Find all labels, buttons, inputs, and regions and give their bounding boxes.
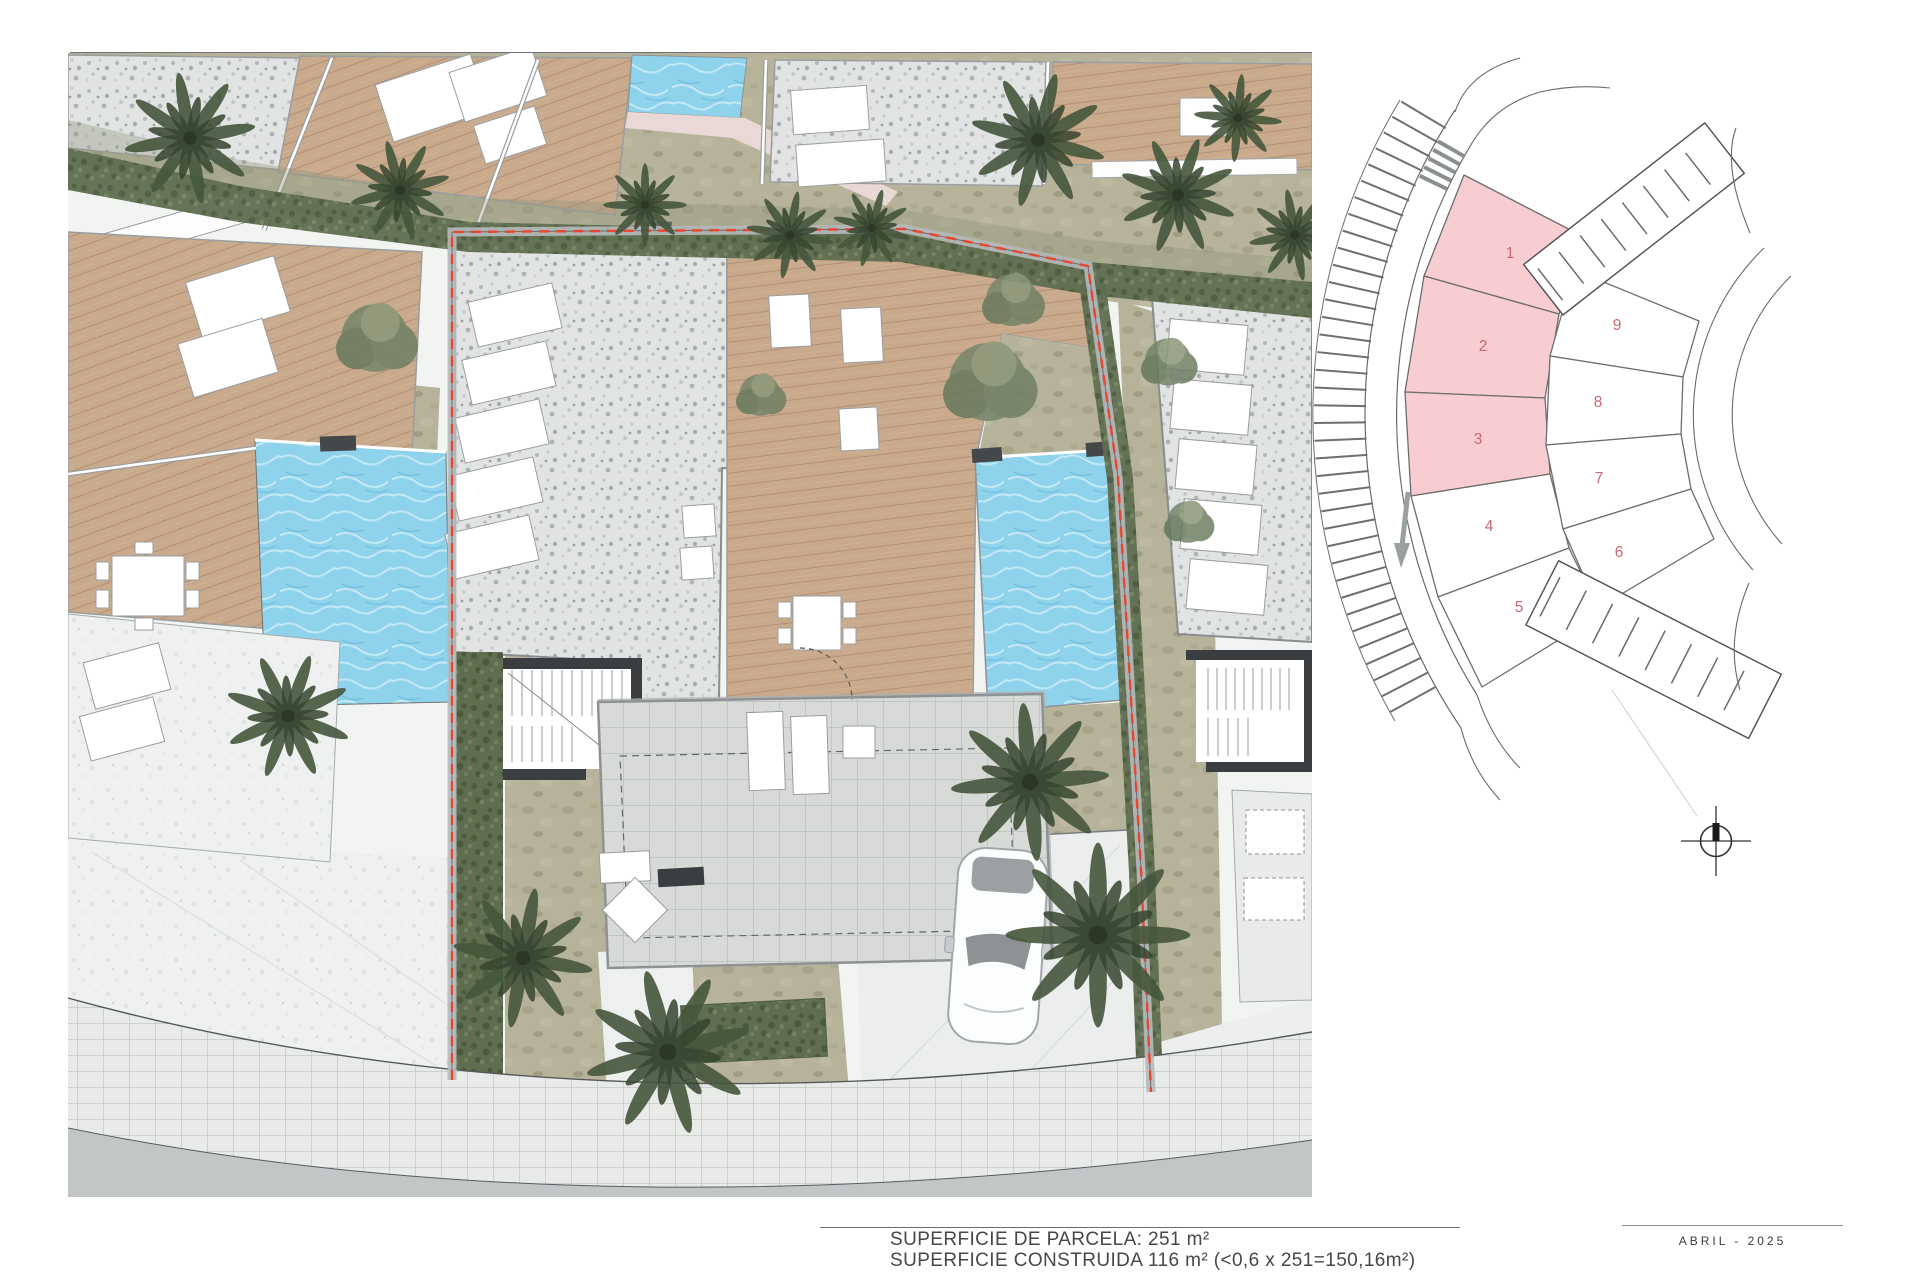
area-annotations: SUPERFICIE DE PARCELA: 251 m² SUPERFICIE…	[890, 1230, 1415, 1271]
plot-label-1: 1	[1506, 245, 1515, 262]
inner-ring	[1693, 128, 1791, 690]
key-building-bottom	[1526, 561, 1781, 739]
plot-label-8: 8	[1594, 394, 1603, 411]
plot-label-5: 5	[1515, 599, 1524, 616]
date-text: ABRIL - 2025	[1622, 1234, 1843, 1248]
plot-label-3: 3	[1474, 431, 1483, 448]
plot-label-4: 4	[1485, 518, 1494, 535]
north-compass-icon	[1681, 806, 1751, 876]
plan-canvas: 1 2 3 4 5 6 7 8 9	[0, 0, 1920, 1280]
plot-label-7: 7	[1595, 470, 1604, 487]
bbq-counter	[658, 867, 705, 887]
date-divider	[1622, 1225, 1843, 1226]
plot-label-9: 9	[1613, 317, 1622, 334]
key-building-top	[1524, 123, 1745, 315]
built-area-text: SUPERFICIE CONSTRUIDA 116 m² (<0,6 x 251…	[890, 1251, 1415, 1272]
crosswalk	[1432, 147, 1452, 185]
drawing-page: 1 2 3 4 5 6 7 8 9 SUPERFICIE DE PARCELA:…	[0, 0, 1920, 1280]
key-plan: 1 2 3 4 5 6 7 8 9	[1313, 58, 1791, 876]
compass-leader-line	[1612, 690, 1697, 816]
site-plan	[68, 46, 1349, 1197]
footer-divider	[820, 1227, 1460, 1228]
traffic-arrow-icon	[1394, 492, 1410, 568]
right-stair-core	[1186, 650, 1314, 772]
dining-table	[112, 556, 184, 616]
central-pool	[975, 450, 1122, 712]
plot-label-6: 6	[1615, 544, 1624, 561]
plot-label-2: 2	[1479, 338, 1488, 355]
plot-area-text: SUPERFICIE DE PARCELA: 251 m²	[890, 1230, 1415, 1251]
